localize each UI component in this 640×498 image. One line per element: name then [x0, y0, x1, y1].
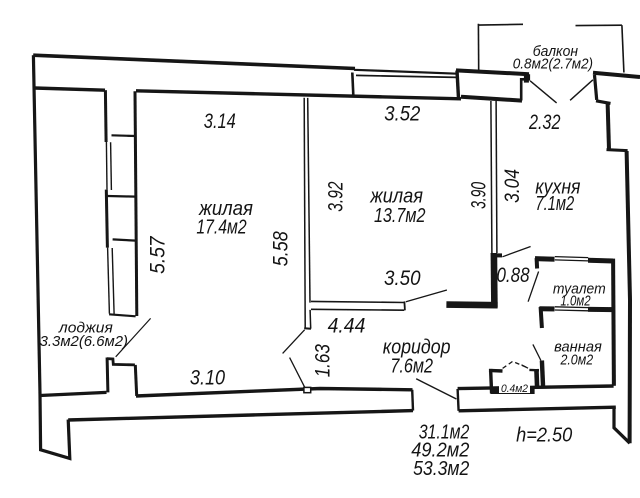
svg-text:13.7м2: 13.7м2	[374, 205, 426, 227]
svg-text:3.10: 3.10	[190, 367, 225, 390]
svg-text:0.4м2: 0.4м2	[501, 383, 528, 395]
svg-text:2.0м2: 2.0м2	[560, 352, 594, 369]
svg-text:2.32: 2.32	[528, 111, 561, 134]
svg-text:3.52: 3.52	[384, 103, 420, 126]
svg-text:h=2.50: h=2.50	[516, 425, 572, 447]
svg-text:0.88: 0.88	[497, 264, 530, 287]
svg-text:5.57: 5.57	[147, 235, 170, 274]
svg-text:1.63: 1.63	[312, 344, 335, 377]
svg-text:3.90: 3.90	[468, 182, 491, 209]
svg-text:7.6м2: 7.6м2	[390, 356, 433, 378]
svg-text:3.3м2(6.6м2): 3.3м2(6.6м2)	[40, 333, 128, 350]
svg-text:4.44: 4.44	[328, 315, 366, 338]
svg-text:3.92: 3.92	[325, 181, 348, 211]
svg-text:17.4м2: 17.4м2	[196, 217, 246, 239]
svg-text:1.0м2: 1.0м2	[560, 293, 591, 310]
svg-text:53.3м2: 53.3м2	[413, 458, 469, 480]
svg-text:7.1м2: 7.1м2	[535, 193, 574, 215]
svg-text:3.50: 3.50	[384, 267, 421, 290]
svg-text:5.58: 5.58	[270, 231, 293, 266]
svg-text:3.04: 3.04	[501, 169, 524, 203]
svg-text:3.14: 3.14	[204, 110, 236, 133]
svg-text:0.8м2(2.7м2): 0.8м2(2.7м2)	[513, 56, 593, 73]
